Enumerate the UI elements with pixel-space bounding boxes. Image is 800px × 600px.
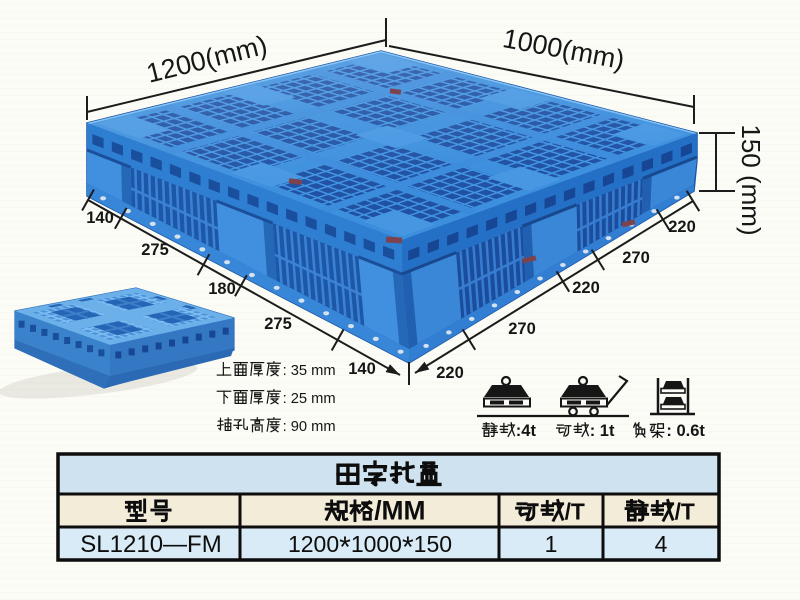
svg-text:220: 220 — [668, 218, 696, 236]
svg-text:270: 270 — [622, 249, 650, 267]
svg-text:140: 140 — [86, 209, 114, 227]
svg-text:/MM: /MM — [374, 496, 425, 526]
svg-text:/T: /T — [565, 499, 585, 525]
svg-text:: 90 mm: : 90 mm — [283, 419, 336, 435]
svg-text:: 25 mm: : 25 mm — [283, 391, 336, 407]
svg-text:/T: /T — [675, 499, 695, 525]
svg-text:180: 180 — [208, 280, 236, 298]
svg-text:1: 1 — [545, 531, 558, 557]
svg-text:220: 220 — [436, 364, 464, 382]
svg-text:: 35 mm: : 35 mm — [283, 363, 336, 379]
svg-text:140: 140 — [348, 360, 376, 378]
svg-text:4: 4 — [655, 531, 668, 557]
svg-text:270: 270 — [508, 320, 536, 338]
svg-text:SL1210—FM: SL1210—FM — [80, 531, 221, 558]
svg-text::4t: :4t — [516, 422, 537, 440]
svg-text:275: 275 — [141, 241, 169, 259]
svg-text:: 1t: : 1t — [590, 422, 615, 440]
svg-text:275: 275 — [264, 315, 292, 333]
svg-text:: 0.6t: : 0.6t — [666, 422, 705, 440]
svg-text:220: 220 — [572, 279, 600, 297]
svg-text:150 (mm): 150 (mm) — [736, 124, 766, 235]
